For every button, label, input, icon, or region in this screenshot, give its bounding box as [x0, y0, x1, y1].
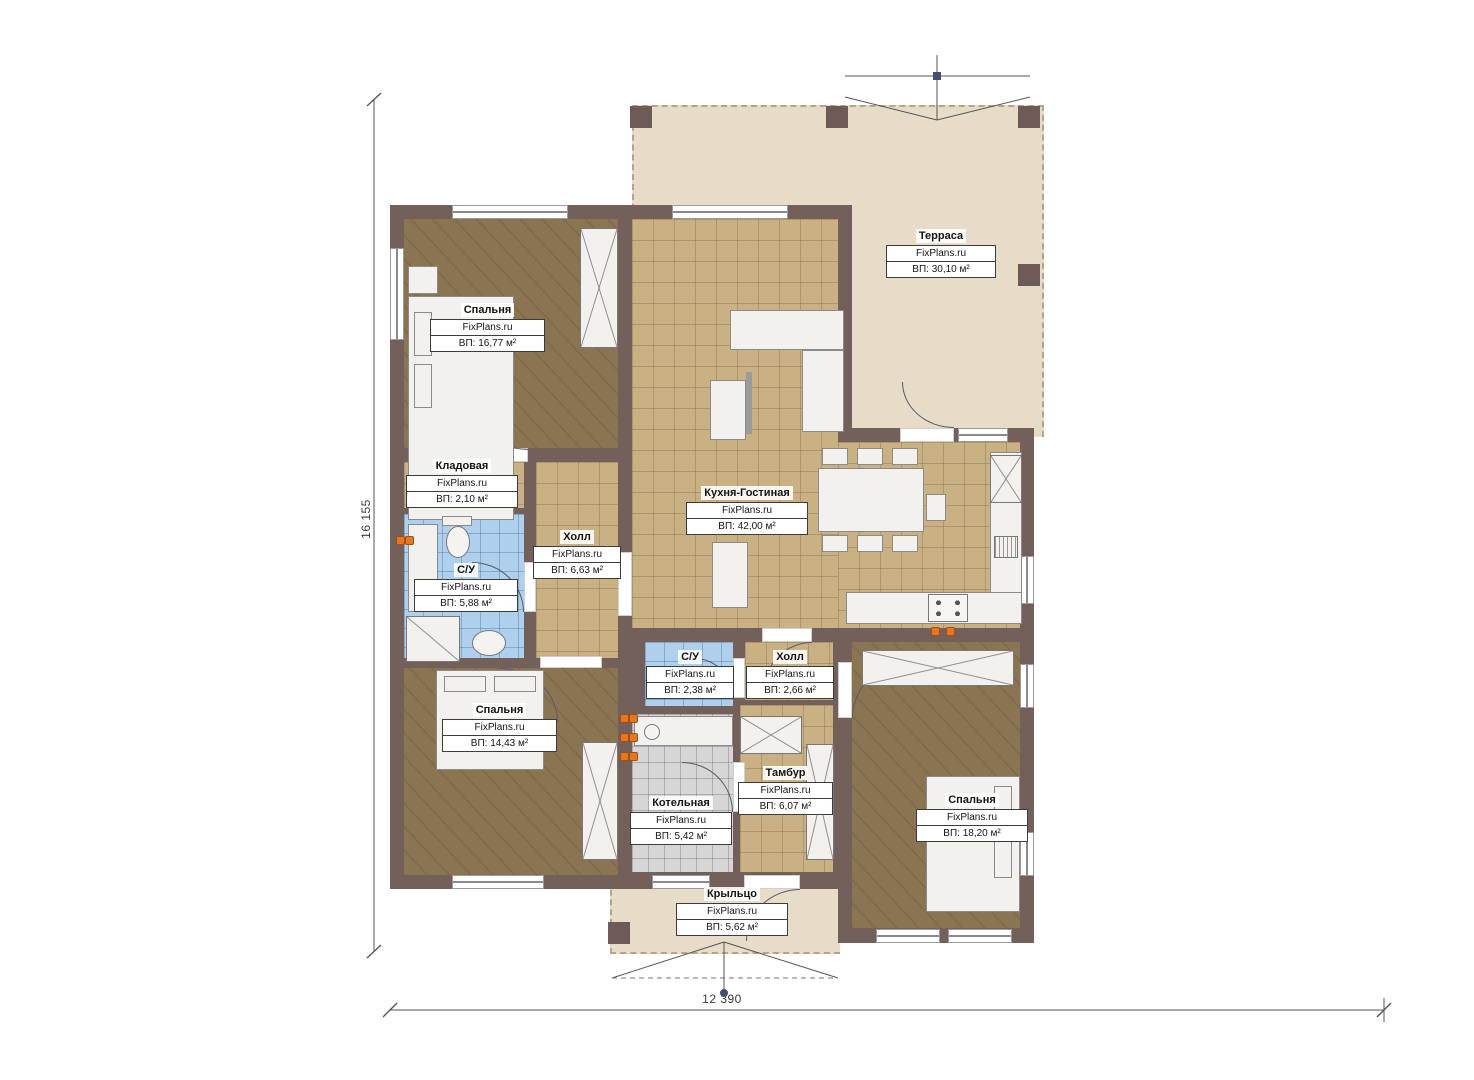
room-area: ВП: 5,42 м² [631, 829, 731, 844]
chair [857, 535, 883, 552]
floor-plan-canvas: Терраса FixPlans.ru ВП: 30,10 м² Спальня… [0, 0, 1474, 1080]
stove-dot [931, 627, 940, 636]
window [1020, 664, 1034, 708]
sofa [730, 310, 844, 350]
dimension-height: 16 155 [359, 489, 373, 549]
window [958, 428, 1008, 442]
terrace-post [1018, 264, 1040, 286]
terrace-post [826, 106, 848, 128]
room-label-boiler-room: Котельная FixPlans.ru ВП: 5,42 м² [630, 793, 732, 845]
pillow [994, 836, 1012, 878]
watermark: FixPlans.ru [887, 246, 995, 262]
room-area: ВП: 6,07 м² [739, 799, 832, 814]
watermark: FixPlans.ru [631, 813, 731, 829]
room-name: Крыльцо [704, 887, 760, 901]
room-name: Тамбур [763, 766, 809, 780]
room-name: С/У [678, 650, 702, 664]
porch-post [608, 922, 630, 944]
radiator-dot [629, 733, 638, 742]
room-name: Спальня [473, 703, 527, 717]
room-label-hall-1: Холл FixPlans.ru ВП: 6,63 м² [533, 527, 621, 579]
watermark: FixPlans.ru [647, 667, 733, 683]
room-area: ВП: 5,62 м² [677, 920, 787, 935]
room-label-bedroom-2: Спальня FixPlans.ru ВП: 14,43 м² [442, 700, 557, 752]
wardrobe [580, 228, 618, 348]
room-label-storage: Кладовая FixPlans.ru ВП: 2,10 м² [406, 456, 518, 508]
fridge [990, 455, 1022, 503]
door-bathroom-2 [733, 658, 745, 698]
pillow [494, 676, 536, 692]
terrace-post [630, 106, 652, 128]
cabinet [712, 542, 748, 608]
pillow [414, 364, 432, 408]
wardrobe [582, 742, 618, 860]
sofa [802, 350, 844, 432]
coffee-table [710, 380, 746, 440]
radiator-dot [620, 714, 629, 723]
radiator-dot [396, 536, 405, 545]
radiator-dot [405, 536, 414, 545]
chair [857, 448, 883, 465]
watermark: FixPlans.ru [917, 810, 1027, 826]
bathroom-sink [472, 630, 506, 656]
room-label-porch: Крыльцо FixPlans.ru ВП: 5,62 м² [676, 884, 788, 936]
room-area: ВП: 2,38 м² [647, 683, 733, 698]
room-name: Кухня-Гостиная [701, 486, 793, 500]
toilet [446, 526, 470, 558]
toilet-tank [442, 516, 472, 526]
window [390, 248, 404, 340]
room-label-vestibule: Тамбур FixPlans.ru ВП: 6,07 м² [738, 763, 833, 815]
shower [406, 616, 460, 662]
highchair [926, 494, 946, 521]
wardrobe [862, 650, 1014, 686]
watermark: FixPlans.ru [443, 720, 556, 736]
dining-table [818, 468, 924, 532]
window [876, 929, 940, 943]
room-label-kitchen-living: Кухня-Гостиная FixPlans.ru ВП: 42,00 м² [686, 483, 808, 535]
dimension-width: 12 390 [692, 992, 752, 1006]
room-area: ВП: 6,63 м² [534, 563, 620, 578]
window [452, 875, 544, 889]
door-hall-2 [762, 628, 812, 642]
window [672, 205, 788, 219]
room-area: ВП: 5,88 м² [415, 596, 517, 611]
room-label-bathroom-2: С/У FixPlans.ru ВП: 2,38 м² [646, 647, 734, 699]
door-bedroom-3 [838, 662, 852, 718]
chair [822, 448, 848, 465]
radiator-dot [629, 714, 638, 723]
pillow [444, 676, 486, 692]
door-bedroom-2 [540, 656, 602, 668]
watermark: FixPlans.ru [677, 904, 787, 920]
room-area: ВП: 2,10 м² [407, 492, 517, 507]
room-area: ВП: 42,00 м² [687, 519, 807, 534]
boiler-dial [644, 724, 660, 740]
room-name: Холл [773, 650, 807, 664]
chair [822, 535, 848, 552]
room-area: ВП: 18,20 м² [917, 826, 1027, 841]
watermark: FixPlans.ru [687, 503, 807, 519]
watermark: FixPlans.ru [407, 476, 517, 492]
watermark: FixPlans.ru [431, 320, 544, 336]
watermark: FixPlans.ru [534, 547, 620, 563]
room-name: Котельная [649, 796, 713, 810]
tv [746, 372, 752, 434]
room-label-bedroom-1: Спальня FixPlans.ru ВП: 16,77 м² [430, 300, 545, 352]
chair [892, 448, 918, 465]
room-name: Кладовая [433, 459, 492, 473]
room-name: С/У [454, 563, 478, 577]
room-label-bedroom-3: Спальня FixPlans.ru ВП: 18,20 м² [916, 790, 1028, 842]
watermark: FixPlans.ru [739, 783, 832, 799]
room-name: Спальня [945, 793, 999, 807]
room-area: ВП: 14,43 м² [443, 736, 556, 751]
room-area: ВП: 16,77 м² [431, 336, 544, 351]
room-label-terrace: Терраса FixPlans.ru ВП: 30,10 м² [886, 226, 996, 278]
radiator-dot [620, 733, 629, 742]
window [452, 205, 568, 219]
stove-dot [946, 627, 955, 636]
room-name: Холл [560, 530, 594, 544]
watermark: FixPlans.ru [415, 580, 517, 596]
chair [892, 535, 918, 552]
room-area: ВП: 2,66 м² [747, 683, 833, 698]
nightstand [408, 266, 438, 294]
door-terrace [900, 428, 954, 442]
stove [928, 594, 968, 622]
watermark: FixPlans.ru [747, 667, 833, 683]
window [1020, 556, 1034, 604]
room-label-hall-2: Холл FixPlans.ru ВП: 2,66 м² [746, 647, 834, 699]
room-label-bathroom-1: С/У FixPlans.ru ВП: 5,88 м² [414, 560, 518, 612]
radiator-dot [620, 752, 629, 761]
room-name: Спальня [461, 303, 515, 317]
kitchen-sink [994, 536, 1018, 558]
window [948, 929, 1012, 943]
terrace-post [1018, 106, 1040, 128]
radiator-dot [629, 752, 638, 761]
wardrobe [740, 716, 802, 754]
room-name: Терраса [916, 229, 966, 243]
room-area: ВП: 30,10 м² [887, 262, 995, 277]
